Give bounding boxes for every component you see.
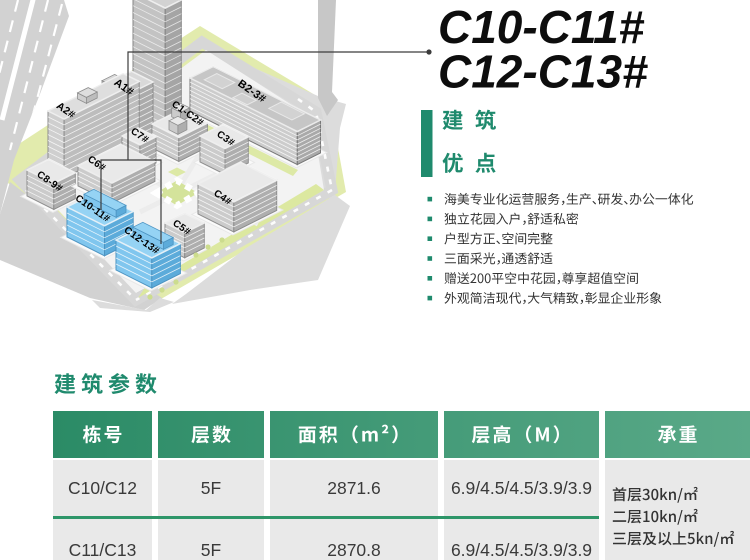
svg-text:5F: 5F <box>201 540 221 560</box>
svg-text:5F: 5F <box>201 478 221 498</box>
svg-text:C11/C13: C11/C13 <box>69 540 137 560</box>
svg-text:C10/C12: C10/C12 <box>68 478 137 498</box>
svg-text:6.9/4.5/4.5/3.9/3.9: 6.9/4.5/4.5/3.9/3.9 <box>451 478 592 498</box>
svg-text:6.9/4.5/4.5/3.9/3.9: 6.9/4.5/4.5/3.9/3.9 <box>451 540 592 560</box>
svg-text:C12-C13#: C12-C13# <box>438 46 648 98</box>
svg-text:2870.8: 2870.8 <box>327 540 381 560</box>
svg-text:2871.6: 2871.6 <box>327 478 381 498</box>
